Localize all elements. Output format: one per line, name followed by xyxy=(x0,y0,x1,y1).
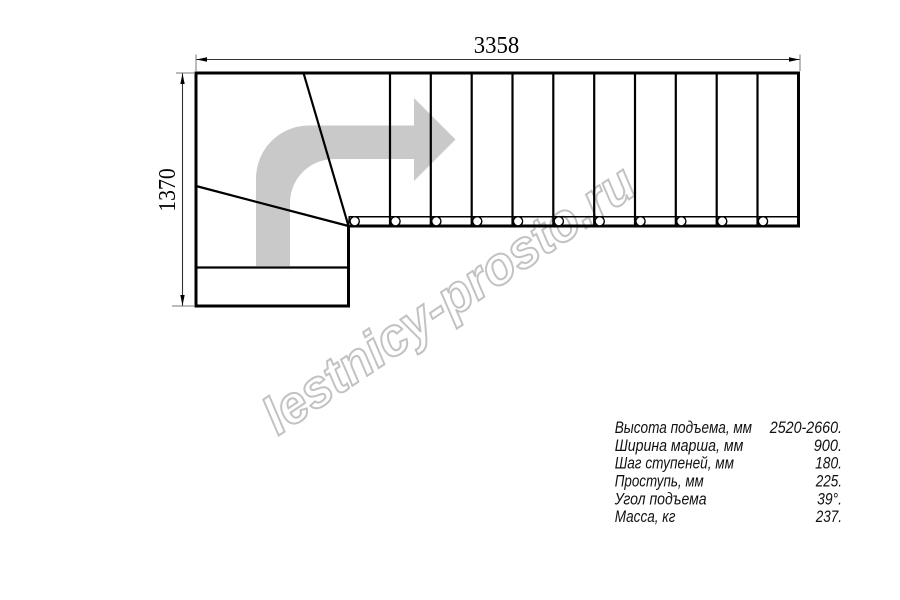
svg-text:900.: 900. xyxy=(814,437,842,455)
svg-text:Высота подъема, мм: Высота подъема, мм xyxy=(615,419,752,437)
svg-text:Ширина марша, мм: Ширина марша, мм xyxy=(615,437,744,455)
svg-text:3358: 3358 xyxy=(474,32,520,59)
svg-text:39°.: 39°. xyxy=(817,490,842,508)
svg-text:237.: 237. xyxy=(815,508,842,526)
svg-text:lestnicy-prosto.ru: lestnicy-prosto.ru xyxy=(252,153,646,446)
svg-text:Шаг ступеней, мм: Шаг ступеней, мм xyxy=(615,455,734,473)
svg-text:2520-2660.: 2520-2660. xyxy=(769,419,842,437)
svg-text:Проступь, мм: Проступь, мм xyxy=(615,473,704,491)
svg-text:1370: 1370 xyxy=(154,168,181,212)
svg-text:180.: 180. xyxy=(815,455,842,473)
svg-text:Угол подъема: Угол подъема xyxy=(614,490,707,508)
svg-text:225.: 225. xyxy=(815,473,842,491)
svg-text:Масса, кг: Масса, кг xyxy=(615,508,676,526)
